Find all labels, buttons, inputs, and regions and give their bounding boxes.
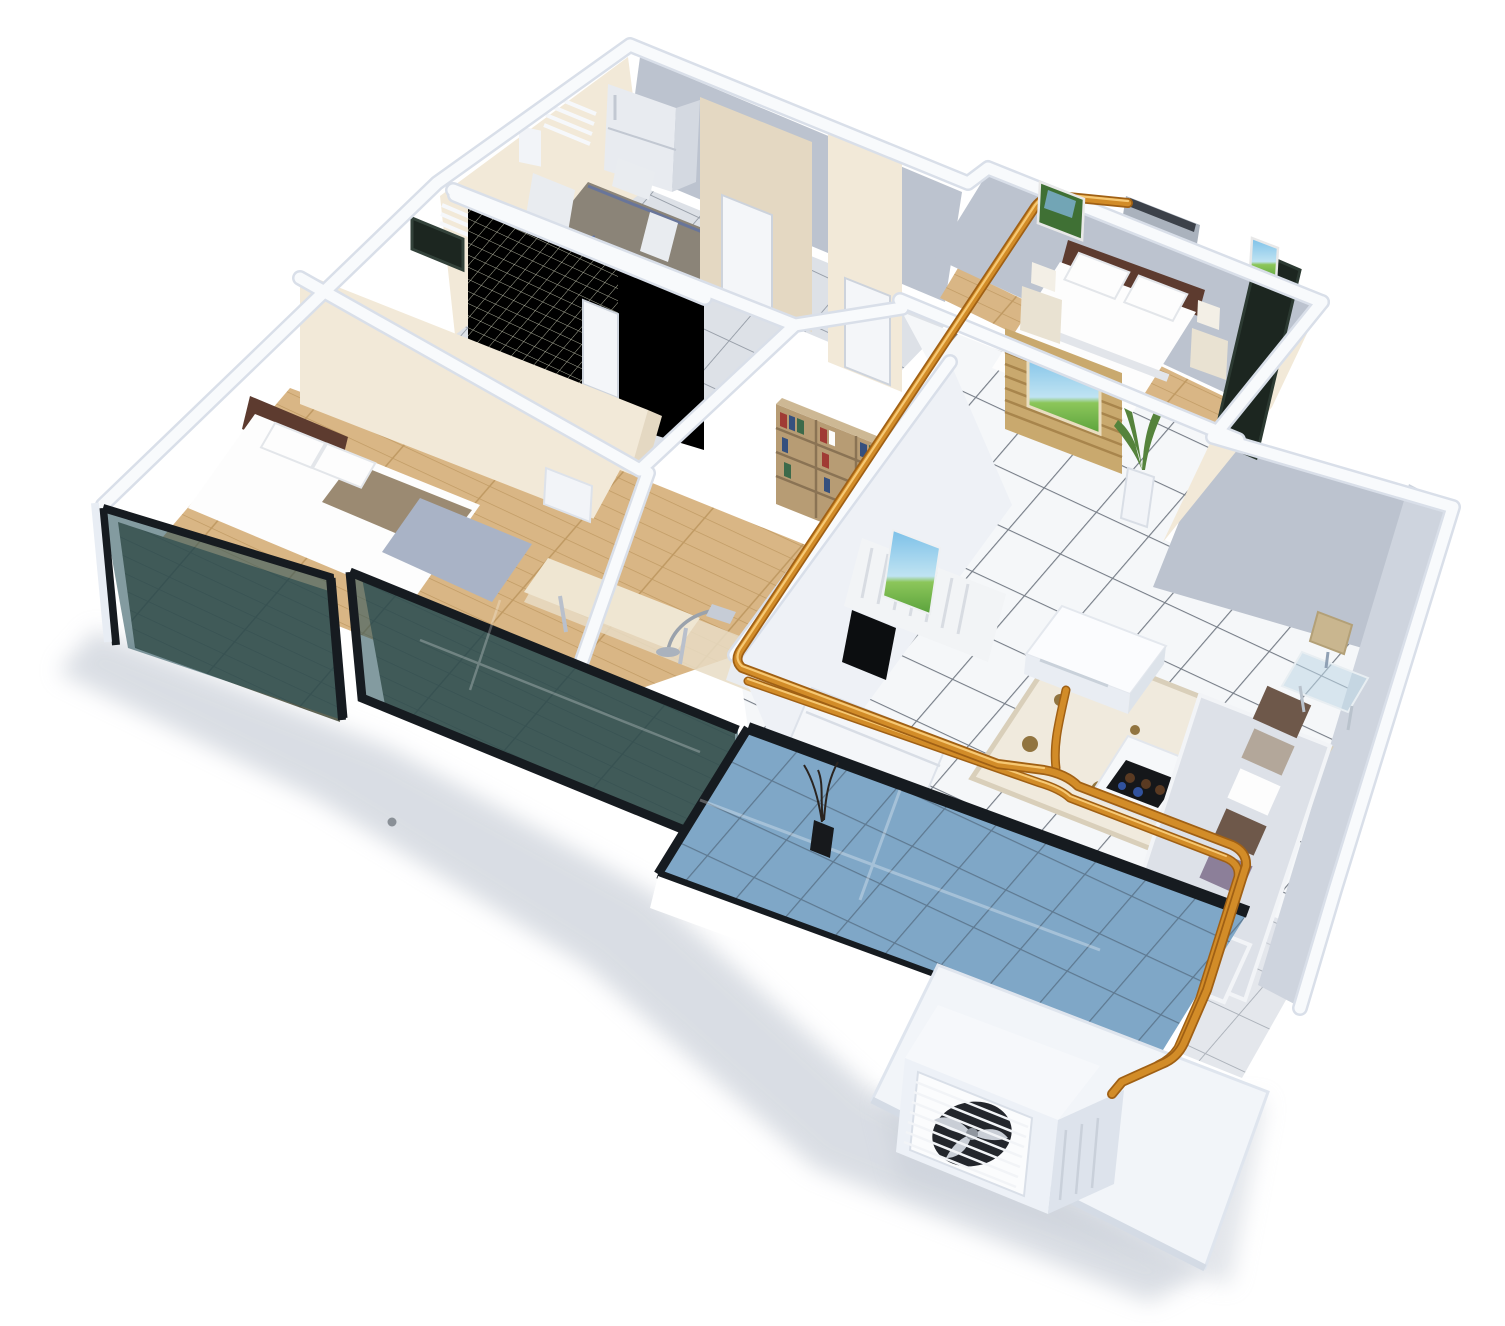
apartment-hvac-render: 3D isometric cutaway rendering of a thre… — [0, 0, 1505, 1326]
bathroom-door — [583, 300, 618, 398]
stray-dot — [388, 818, 397, 827]
wall-box — [519, 126, 541, 167]
isometric-apartment-scene: 3D isometric cutaway rendering of a thre… — [0, 0, 1505, 1326]
